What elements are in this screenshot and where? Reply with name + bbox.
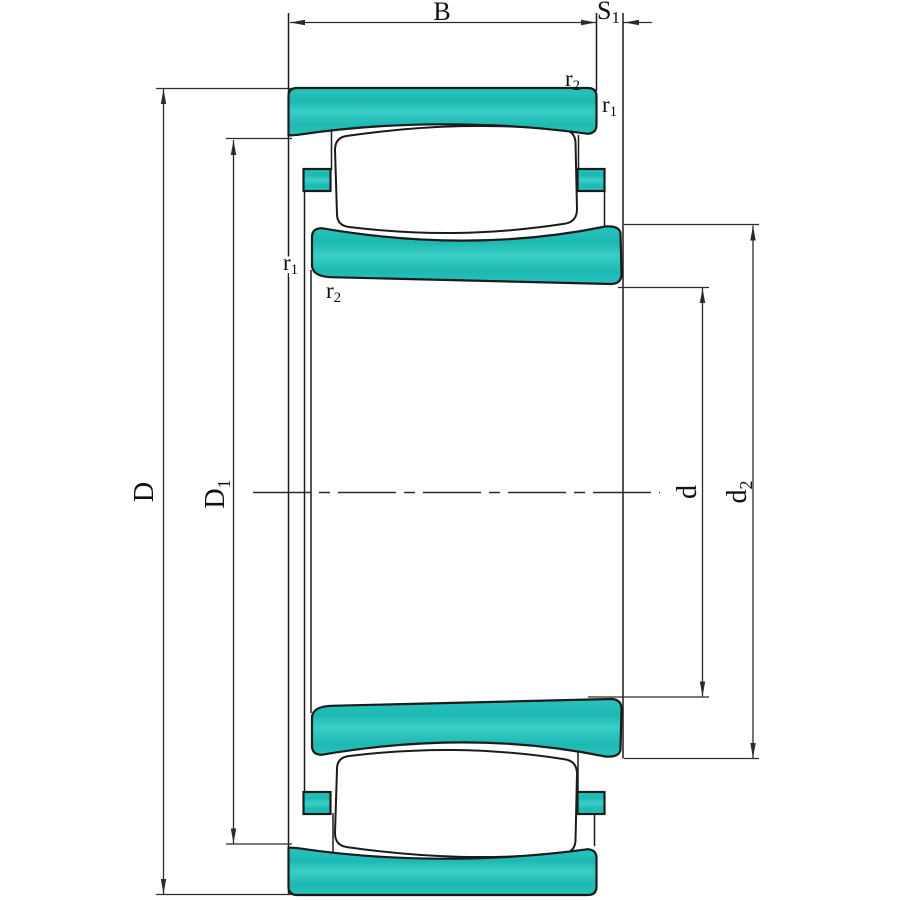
bearing-cross-section-drawing: B S1 r2 r1 r1 r2 D D1 d d2 bbox=[0, 0, 900, 900]
label-B: B bbox=[433, 0, 450, 26]
roller-top bbox=[335, 126, 577, 233]
cage-rail-bottom-right bbox=[578, 792, 605, 814]
label-r1-top: r1 bbox=[602, 92, 617, 120]
arrow-d-bottom bbox=[700, 682, 705, 697]
roller-bottom bbox=[335, 750, 577, 857]
inner-ring-bottom-section bbox=[312, 699, 622, 757]
arrow-S1 bbox=[624, 20, 639, 25]
label-r2-middle: r2 bbox=[326, 278, 341, 306]
cage-rail-top-left bbox=[304, 169, 331, 191]
label-d2: d2 bbox=[722, 481, 756, 504]
arrow-d-top bbox=[700, 288, 705, 303]
arrow-D1-top bbox=[231, 140, 236, 155]
label-D: D bbox=[129, 482, 160, 502]
inner-ring bbox=[312, 226, 622, 756]
label-r1-middle: r1 bbox=[283, 250, 298, 278]
arrow-D-top bbox=[161, 89, 166, 104]
inner-ring-top-section bbox=[312, 226, 622, 284]
arrow-D-bottom bbox=[161, 879, 166, 894]
arrow-B-right bbox=[581, 20, 596, 25]
cage-rail-bottom-left bbox=[304, 792, 331, 814]
arrow-d2-top bbox=[750, 226, 755, 241]
arrow-d2-bottom bbox=[750, 743, 755, 758]
label-D1: D1 bbox=[200, 479, 234, 508]
drawing-canvas: B S1 r2 r1 r1 r2 D D1 d d2 bbox=[0, 0, 900, 900]
cage-rail-top-right bbox=[578, 169, 605, 191]
arrow-D1-bottom bbox=[231, 829, 236, 844]
label-d: d bbox=[672, 485, 703, 499]
label-r2-top: r2 bbox=[565, 66, 580, 94]
label-S1: S1 bbox=[597, 0, 620, 27]
arrow-B-left bbox=[290, 20, 305, 25]
